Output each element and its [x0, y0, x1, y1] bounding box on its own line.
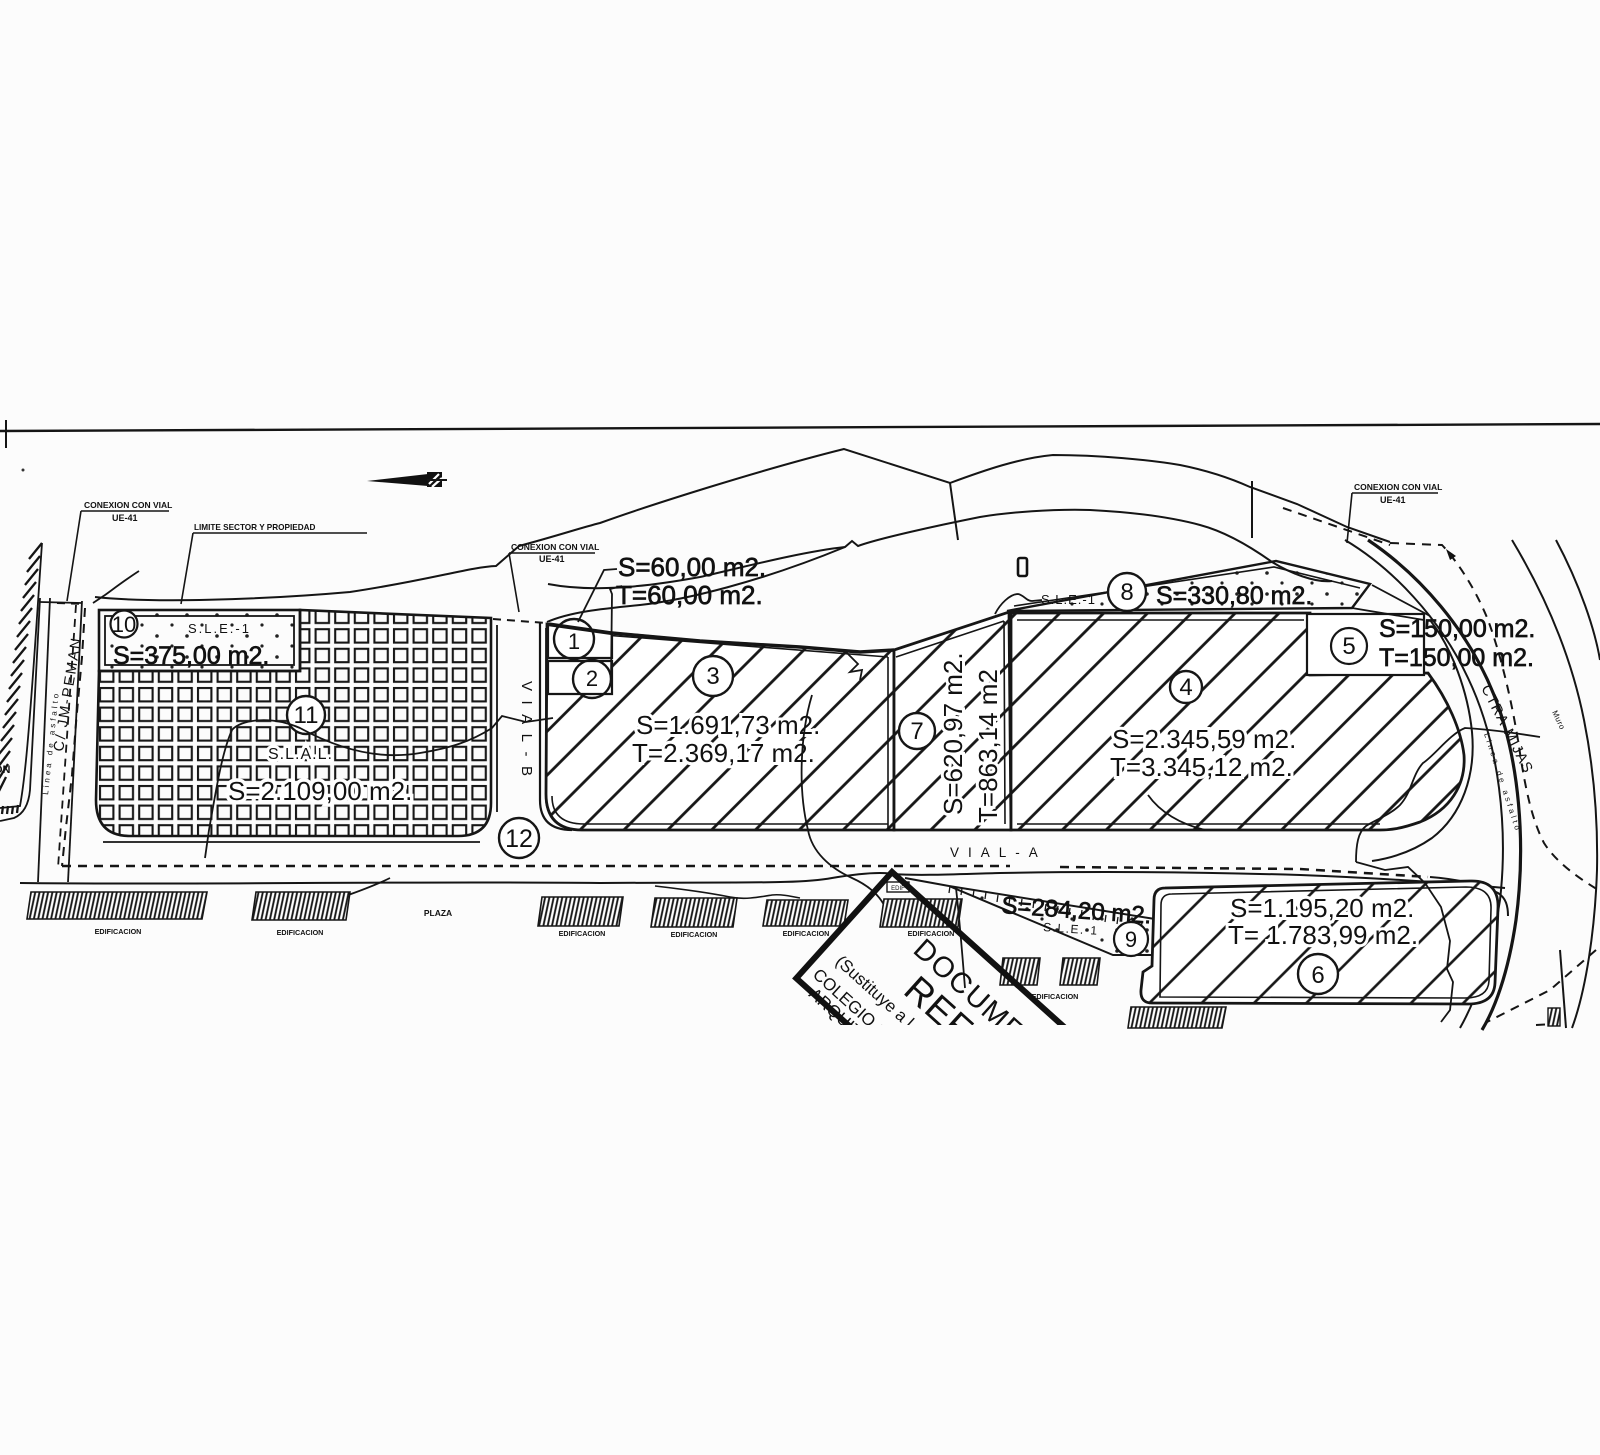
- svg-text:S=330,80 m2.: S=330,80 m2.: [1156, 582, 1312, 610]
- svg-text:EDIFICACION: EDIFICACION: [671, 930, 718, 939]
- svg-text:EDIFICACION: EDIFICACION: [277, 928, 324, 937]
- svg-text:CONEXION CON VIAL: CONEXION CON VIAL: [84, 500, 172, 510]
- svg-text:12: 12: [505, 825, 533, 853]
- svg-text:1: 1: [568, 629, 580, 654]
- svg-text:CONEXION CON VIAL: CONEXION CON VIAL: [511, 542, 599, 552]
- svg-text:EDIFICACION: EDIFICACION: [1032, 992, 1079, 1001]
- svg-text:UE-41: UE-41: [1380, 495, 1406, 505]
- svg-text:VIAL-B: VIAL-B: [518, 681, 535, 786]
- svg-text:S=620,97 m2.: S=620,97 m2.: [938, 652, 968, 815]
- svg-text:S.L.A.L.: S.L.A.L.: [268, 746, 333, 763]
- svg-text:EDIFICACION: EDIFICACION: [95, 927, 142, 936]
- svg-text:LIMITE SECTOR Y PROPIEDAD: LIMITE SECTOR Y PROPIEDAD: [194, 523, 316, 532]
- svg-text:S.L.E.-1: S.L.E.-1: [188, 621, 251, 636]
- svg-text:S=1.195,20 m2.: S=1.195,20 m2.: [1230, 893, 1414, 923]
- svg-text:S=2.109,00 m2.: S=2.109,00 m2.: [228, 776, 412, 806]
- svg-text:10: 10: [112, 612, 136, 637]
- svg-text:T= 1.783,99 m2.: T= 1.783,99 m2.: [1228, 920, 1418, 950]
- svg-text:EDIFICACION: EDIFICACION: [559, 929, 606, 938]
- svg-text:9: 9: [1125, 927, 1137, 952]
- svg-text:5: 5: [1342, 633, 1355, 660]
- svg-text:UE-41: UE-41: [112, 513, 138, 523]
- svg-text:EDIFICACION: EDIFICACION: [783, 929, 830, 938]
- svg-text:T=60,00 m2.: T=60,00 m2.: [616, 580, 763, 610]
- svg-text:T=3.345,12 m2.: T=3.345,12 m2.: [1110, 752, 1293, 782]
- svg-text:8: 8: [1120, 579, 1133, 606]
- svg-text:UE-41: UE-41: [539, 554, 565, 564]
- svg-text:S.L.E.-1: S.L.E.-1: [1041, 592, 1096, 607]
- svg-text:7: 7: [910, 718, 923, 745]
- svg-text:EDIF: EDIF: [891, 886, 905, 892]
- svg-text:T=2.369,17 m2.: T=2.369,17 m2.: [632, 738, 815, 768]
- svg-text:11: 11: [294, 702, 319, 729]
- svg-text:ON: ON: [0, 764, 11, 776]
- svg-text:CONEXION CON VIAL: CONEXION CON VIAL: [1354, 482, 1442, 492]
- svg-text:4: 4: [1179, 674, 1192, 701]
- svg-text:S=375,00 m2.: S=375,00 m2.: [113, 642, 269, 670]
- svg-text:6: 6: [1311, 962, 1324, 989]
- svg-text:2: 2: [586, 666, 598, 691]
- svg-text:PLAZA: PLAZA: [424, 908, 452, 918]
- svg-text:S=2.345,59 m2.: S=2.345,59 m2.: [1112, 724, 1296, 754]
- svg-text:S=1.691,73 m2.: S=1.691,73 m2.: [636, 710, 820, 740]
- svg-text:S=60,00 m2.: S=60,00 m2.: [618, 552, 766, 582]
- svg-text:VIAL-A: VIAL-A: [950, 845, 1047, 860]
- svg-text:T=863,14 m2: T=863,14 m2: [973, 669, 1003, 823]
- svg-text:3: 3: [706, 663, 719, 690]
